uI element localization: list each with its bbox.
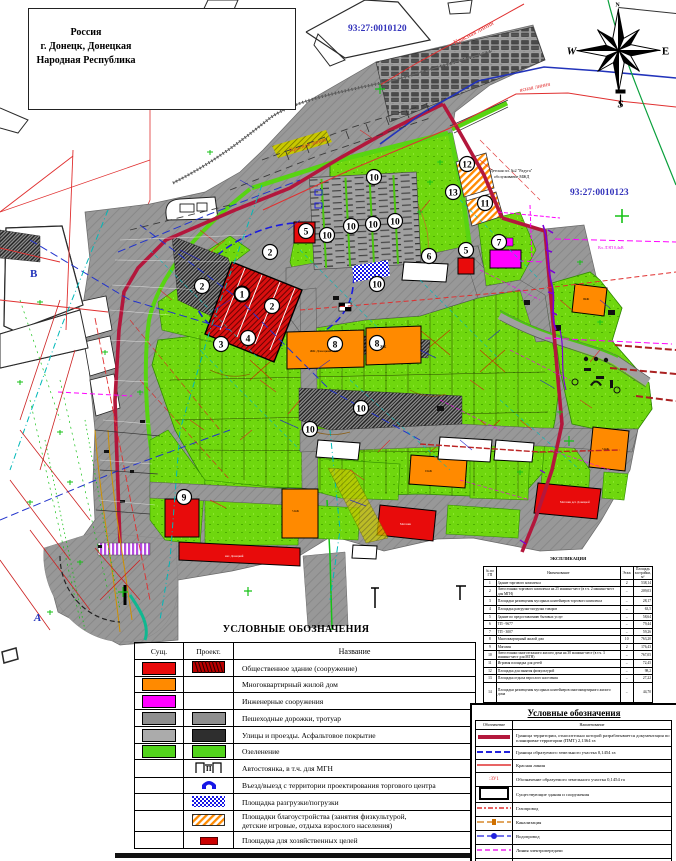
svg-text:5 КЖ: 5 КЖ (292, 509, 299, 513)
svg-text:маг. Донецкий: маг. Донецкий (225, 554, 244, 558)
svg-text:93:27:0010120: 93:27:0010120 (348, 24, 407, 34)
svg-text:3: 3 (219, 341, 224, 351)
svg-text:9 КЖ: 9 КЖ (425, 469, 432, 473)
svg-text:5: 5 (464, 247, 469, 257)
svg-text:ясная линия: ясная линия (519, 82, 551, 94)
svg-text:10: 10 (369, 174, 379, 184)
svg-text:9КЖ: 9КЖ (583, 297, 590, 301)
svg-text:10: 10 (305, 426, 315, 436)
svg-text:4: 4 (246, 335, 251, 345)
svg-text:Детская пл. №2 "Радуга": Детская пл. №2 "Радуга" (490, 168, 533, 173)
svg-text:обслуживание МЖД: обслуживание МЖД (494, 174, 529, 179)
svg-text:5: 5 (304, 228, 309, 238)
svg-text:ЖК: ЖК (380, 344, 387, 349)
svg-text:А: А (33, 612, 41, 624)
svg-text:В: В (30, 268, 38, 280)
svg-text:10: 10 (346, 223, 356, 233)
svg-text:6: 6 (427, 253, 432, 263)
svg-text:10: 10 (322, 232, 332, 242)
svg-text:12: 12 (462, 161, 472, 171)
svg-text:Магазин дет. Донецкой: Магазин дет. Донецкой (560, 500, 590, 504)
svg-text:8: 8 (375, 340, 380, 350)
svg-text:E: E (662, 46, 669, 58)
svg-text:10: 10 (372, 281, 382, 291)
svg-text:93:27:0010123: 93:27:0010123 (570, 188, 629, 198)
svg-text:ЖК Донецкий 10К: ЖК Донецкий 10К (310, 349, 339, 353)
svg-text:11: 11 (481, 200, 490, 210)
svg-text:10: 10 (368, 221, 378, 231)
svg-text:Магазин: Магазин (400, 522, 411, 526)
svg-text:W: W (567, 46, 578, 58)
svg-text:13: 13 (448, 189, 458, 199)
svg-text:N: N (615, 3, 620, 9)
svg-text:10: 10 (356, 405, 366, 415)
svg-text:10: 10 (390, 218, 400, 228)
svg-text:7: 7 (497, 239, 502, 249)
svg-text:2: 2 (268, 249, 273, 259)
svg-text:Вл. ЛЭП 0,4кВ: Вл. ЛЭП 0,4кВ (598, 245, 624, 251)
svg-text:2: 2 (200, 283, 205, 293)
svg-text:П: П (206, 765, 212, 773)
svg-text:2: 2 (270, 303, 275, 313)
svg-text:1: 1 (240, 291, 245, 301)
svg-text:5 КЖ: 5 КЖ (602, 447, 609, 451)
svg-text:9: 9 (182, 494, 187, 504)
